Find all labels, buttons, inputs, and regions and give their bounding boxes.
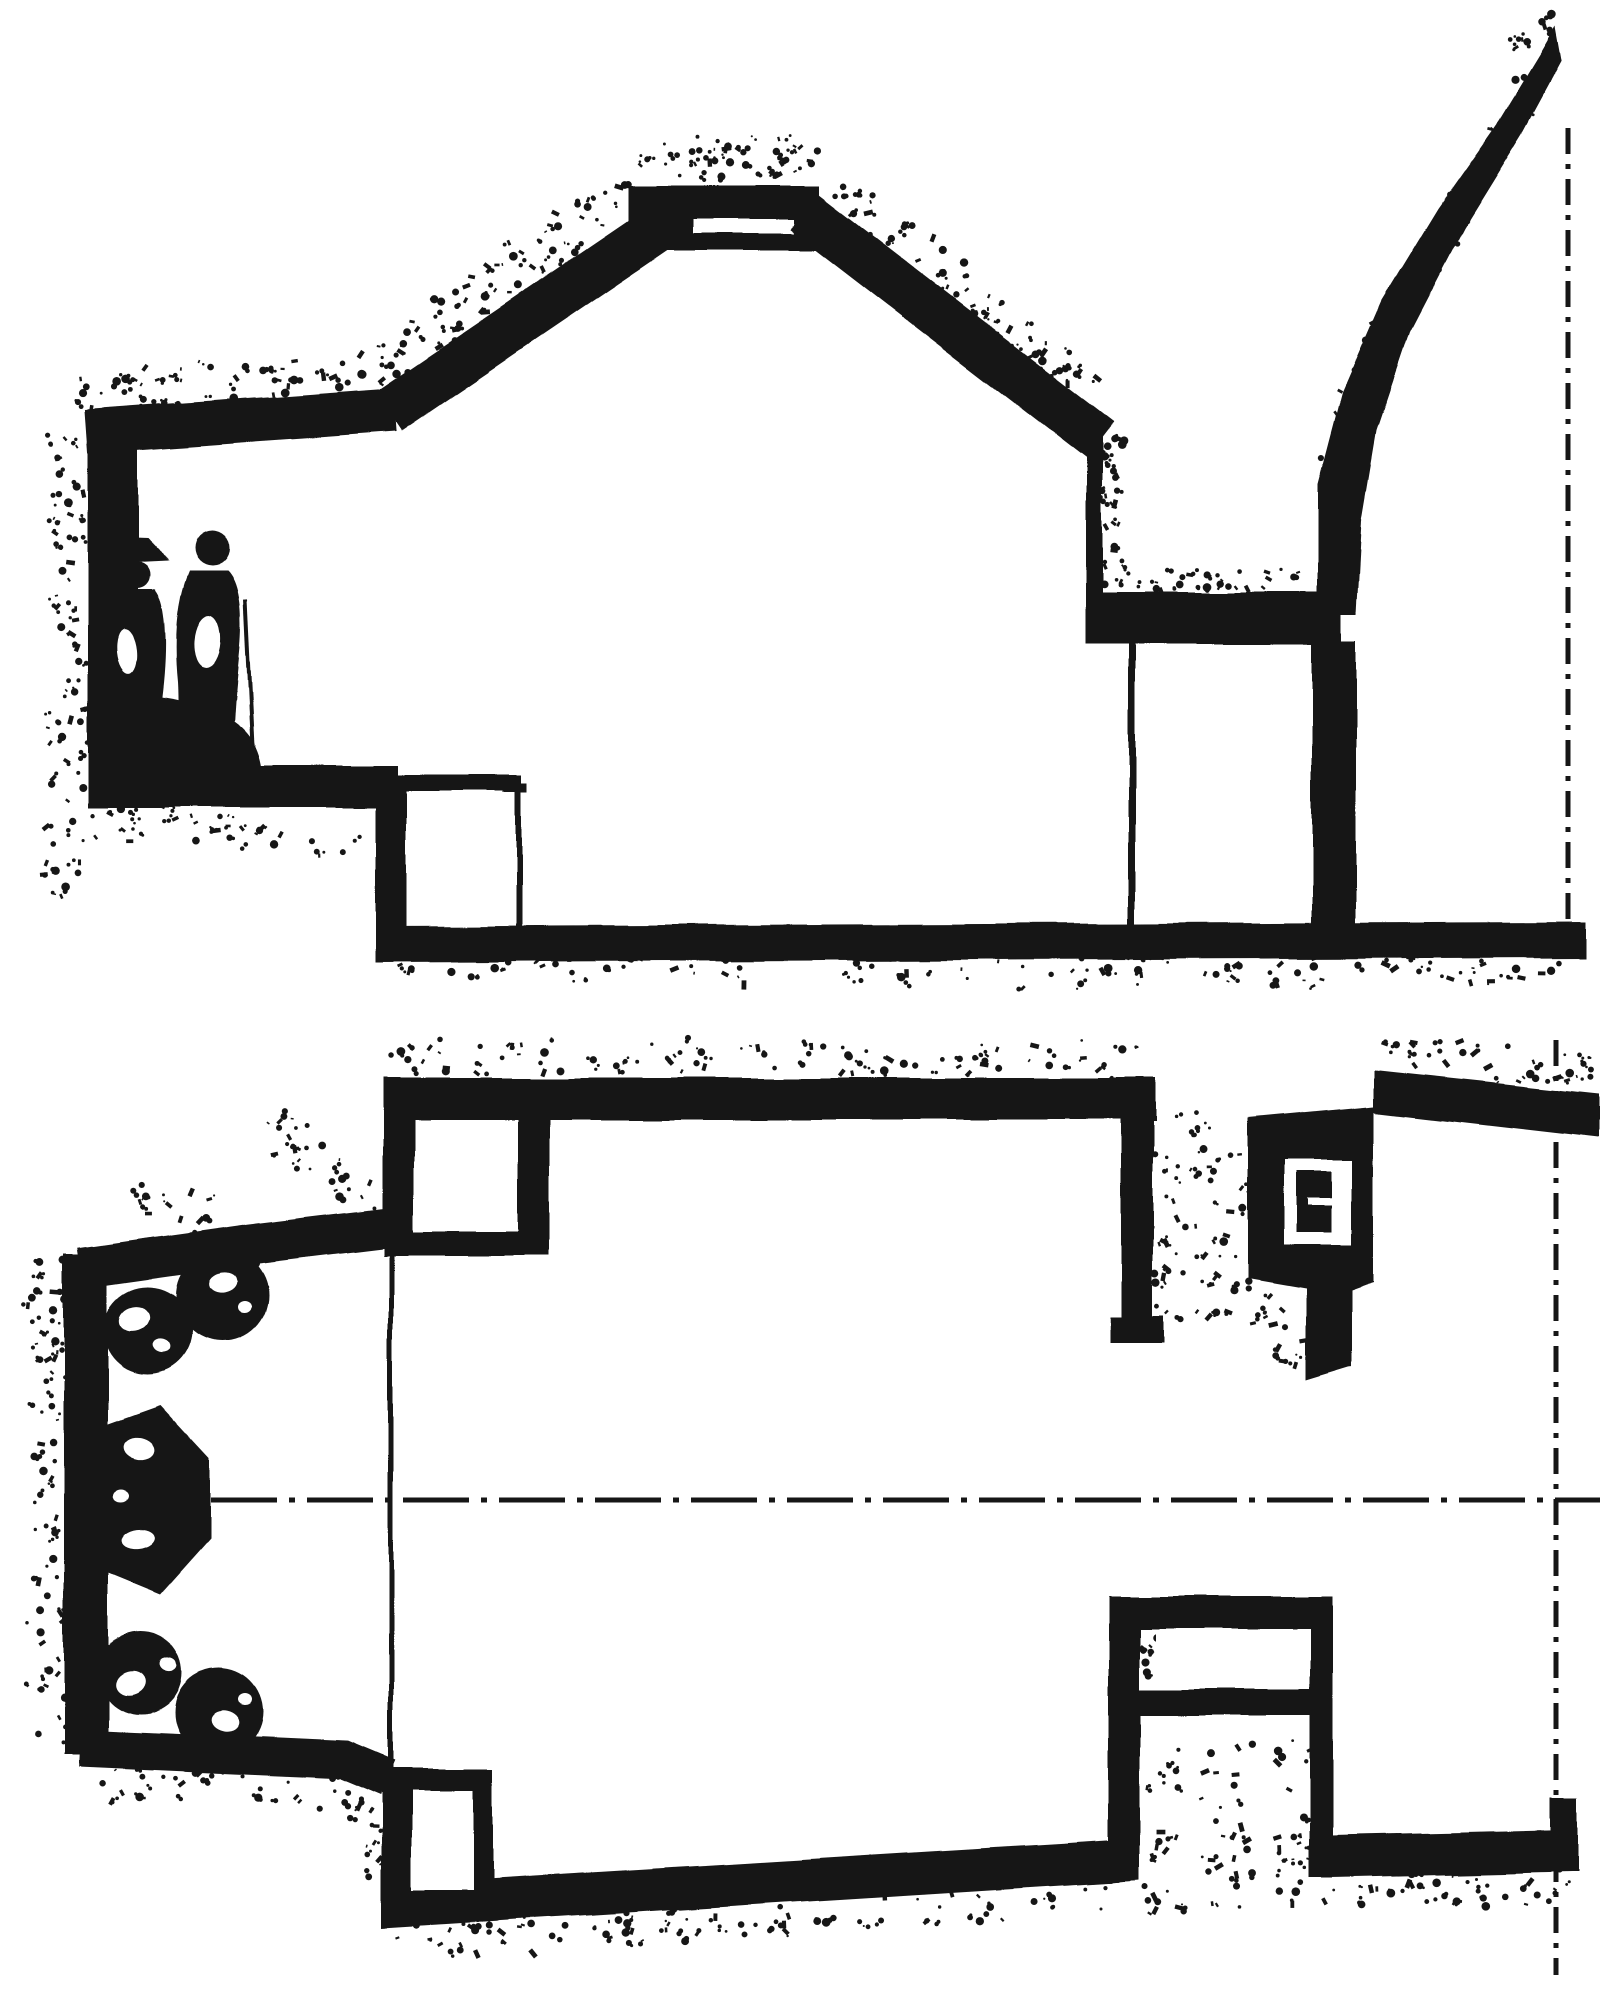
plan-chancel-pier-bottom-right-wall: [473, 1768, 493, 1908]
plan-apse-column-2: [176, 1249, 268, 1341]
plan-chancel-pier-bottom-left-wall: [382, 1768, 412, 1918]
ramp-texture-se-3: [1273, 1739, 1313, 1908]
section-step-strip: [398, 776, 522, 792]
column-2-carving-small: [237, 1300, 251, 1312]
rock-texture-apex: [638, 134, 821, 182]
section-pole-cap: [504, 784, 528, 793]
ramp-texture-se-1: [1142, 1748, 1188, 1916]
plan-apse-column-3: [98, 1630, 182, 1714]
plan-bottom-wall-left: [382, 1838, 1140, 1928]
rock-texture-under-bench: [90, 804, 361, 858]
plan-ne-passage-left-wall: [1121, 1078, 1153, 1340]
rock-texture-plan-left: [21, 1256, 69, 1745]
figure-left-body: [103, 589, 166, 772]
plan-se-passage-top-band: [1109, 1596, 1333, 1628]
section-cliff-ridge: [1318, 26, 1562, 614]
rock-cut-structure-drawing: [0, 0, 1603, 1992]
section-roof-apex: [628, 186, 820, 250]
figure-right-body: [171, 571, 241, 770]
bema-carving-3: [112, 1490, 128, 1502]
plan-se-door-niche: [1155, 1628, 1295, 1690]
rock-texture-plan-nw-1: [266, 1108, 389, 1210]
rock-texture-section-left: [40, 433, 89, 900]
plan-bottom-wall-right: [1310, 1830, 1572, 1878]
section-ceiling-band: [86, 410, 394, 432]
figure-right-head: [193, 530, 229, 566]
plan-chancel-pier-top-right-wall: [518, 1118, 549, 1256]
plan-ne-passage-left-foot: [1110, 1316, 1164, 1342]
section-door-lintel: [1086, 592, 1342, 644]
plan-se-passage-right-wall: [1310, 1605, 1333, 1878]
wall-ink-shapes: [64, 26, 1598, 1928]
section-apex-slit: [692, 220, 794, 234]
plan-apse-column-4: [174, 1668, 262, 1756]
ne-niche-glyph-top: [1306, 1172, 1331, 1199]
rock-stipple-texture: [21, 10, 1594, 1959]
section-floor: [376, 922, 1585, 962]
ne-niche-glyph-bar: [1295, 1172, 1306, 1233]
section-roof-right-pitch: [804, 212, 1100, 440]
plan-sw-niche: [412, 1790, 473, 1890]
section-step-front: [376, 786, 406, 936]
ramp-texture-ne-4: [1250, 1293, 1308, 1369]
rock-texture-shaft-bottom: [1118, 568, 1300, 596]
plan-se-passage-left-wall: [1109, 1605, 1140, 1882]
ramp-texture-ne-2: [1189, 1110, 1222, 1321]
ramp-texture-ne-1: [1150, 1112, 1188, 1322]
ne-niche-glyph-bottom: [1306, 1206, 1331, 1233]
column-4-carving-small: [237, 1694, 251, 1706]
architectural-drawing-svg: [0, 0, 1603, 1992]
plan-top-wall: [383, 1078, 1156, 1120]
ramp-texture-se-2: [1199, 1741, 1256, 1909]
rock-texture-plan-top: [388, 1035, 1138, 1080]
figure-left-head: [124, 562, 150, 588]
plan-se-niche-sill: [1140, 1690, 1310, 1716]
section-door-right-wall: [1312, 640, 1356, 930]
